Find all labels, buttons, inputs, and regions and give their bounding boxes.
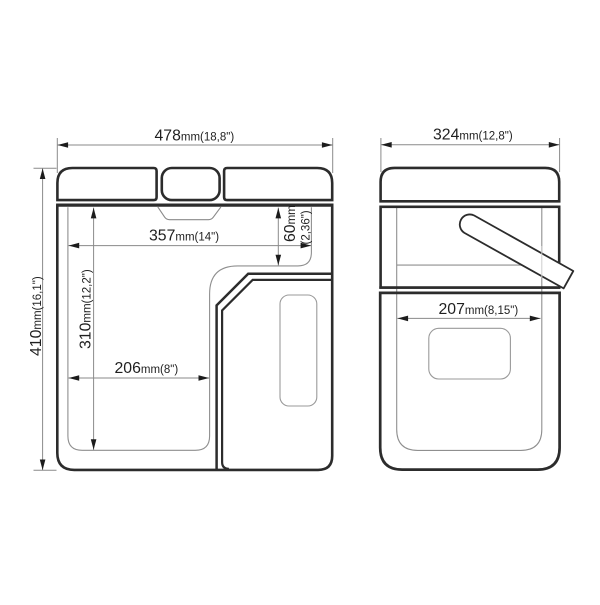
svg-text:(2,36"): (2,36") xyxy=(301,210,313,244)
